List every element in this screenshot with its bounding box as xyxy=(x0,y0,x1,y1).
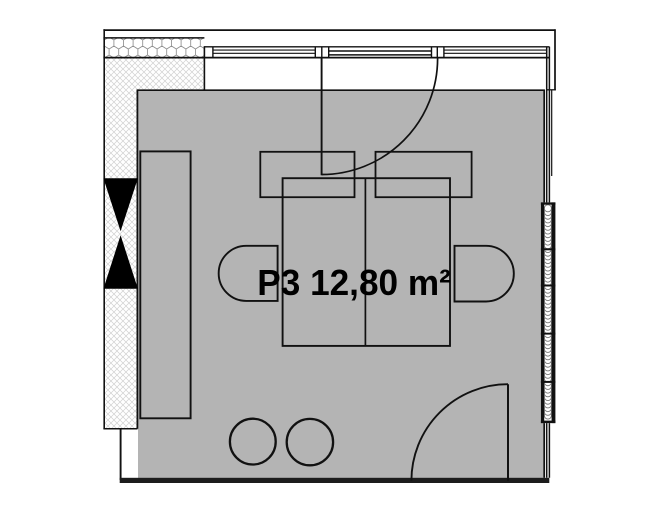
svg-text:P3 12,80 m²: P3 12,80 m² xyxy=(257,262,451,303)
